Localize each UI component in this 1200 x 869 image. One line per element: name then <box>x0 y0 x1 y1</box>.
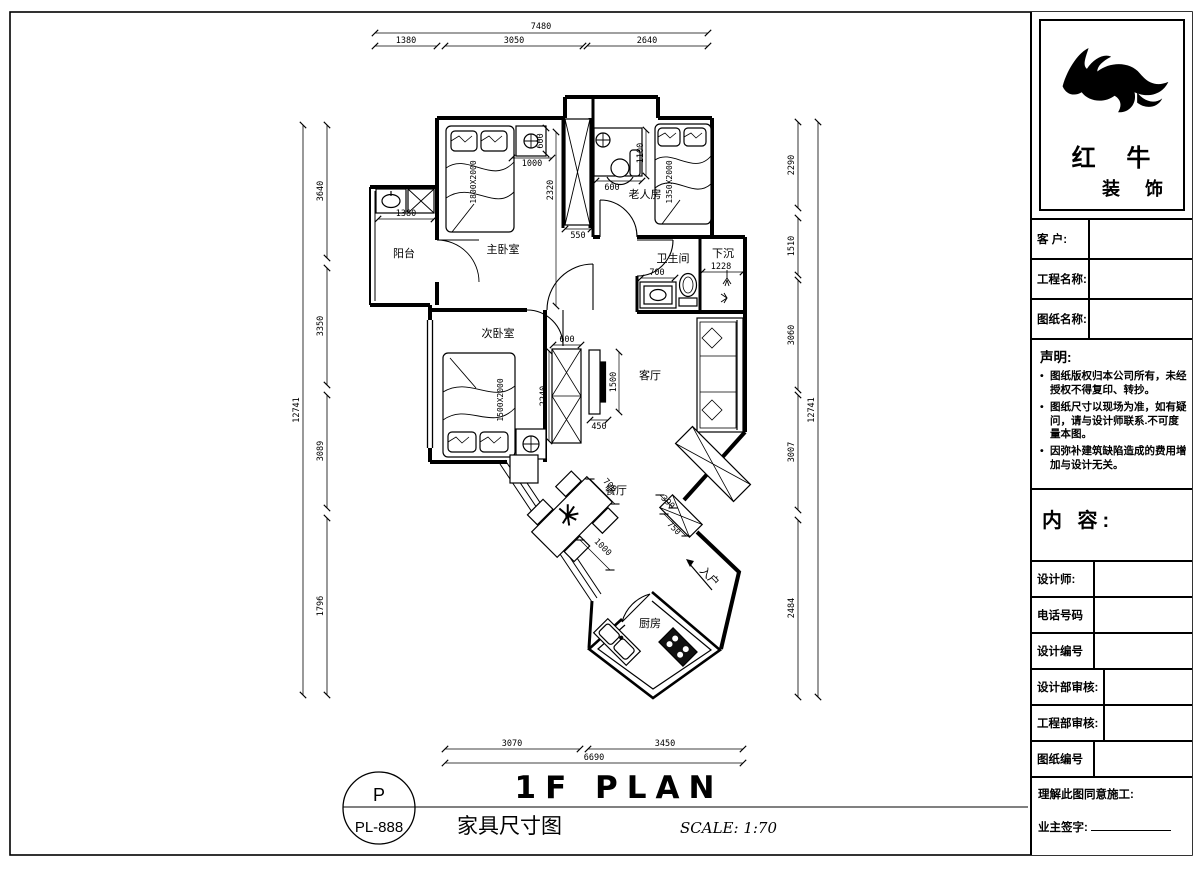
stamp-code: PL-888 <box>355 819 403 836</box>
dim-left-4: 1796 <box>316 596 326 616</box>
info-row-design-audit: 设计部审核: <box>1032 668 1192 704</box>
info-row-design-no: 设计编号 <box>1032 632 1192 668</box>
info-value <box>1093 598 1192 632</box>
elder-bed-size: 1350X2000 <box>665 160 674 204</box>
dim-right-overall: 12741 <box>807 397 817 423</box>
dim-bottom-overall: 6690 <box>584 753 604 763</box>
info-value <box>1093 742 1192 776</box>
room-label-kitchen: 厨房 <box>639 617 661 630</box>
dim-top-2: 3050 <box>504 36 524 46</box>
brand-name-2: 装 饰 <box>1041 175 1173 201</box>
field-value <box>1088 300 1192 338</box>
dim-left-overall: 12741 <box>292 397 302 423</box>
field-row-drawing-name: 图纸名称: <box>1032 298 1192 338</box>
field-value <box>1088 260 1192 298</box>
bath-vanity <box>640 282 676 308</box>
info-label: 工程部审核: <box>1032 715 1103 731</box>
hall-closet <box>552 349 581 443</box>
owner-signature-label: 业主签字: <box>1038 818 1186 835</box>
info-label: 设计师: <box>1032 571 1093 587</box>
dim-balcony: 1380 <box>396 209 416 219</box>
room-label-dining: 餐厅 <box>605 483 627 497</box>
info-value <box>1103 670 1192 704</box>
dim-right-3: 3060 <box>787 325 797 345</box>
stamp-letter: P <box>373 785 385 805</box>
signature-label-text: 业主签字: <box>1038 822 1088 834</box>
second-bed-size: 1500X2000 <box>496 378 505 422</box>
dimensions-left: 12741 3640 3350 3089 1796 <box>292 125 327 695</box>
dim-right-5: 2484 <box>787 598 797 618</box>
room-label-balcony: 阳台 <box>393 246 415 260</box>
dim-sunken: 1228 <box>711 262 731 272</box>
room-label-master: 主卧室 <box>487 242 520 256</box>
dim-master-len: 2320 <box>546 180 556 200</box>
info-label: 电话号码 <box>1032 607 1093 623</box>
brand-name: 红 牛 <box>1051 138 1183 173</box>
dim-bottom-2: 3450 <box>655 739 675 749</box>
info-label: 图纸编号 <box>1032 751 1093 767</box>
drawing-title-area: P PL-888 1F PLAN 家具尺寸图 SCALE: 1:70 <box>343 770 1028 844</box>
shower-head <box>721 270 731 303</box>
room-label-bath: 卫生间 <box>657 251 690 265</box>
signature-line <box>1091 818 1171 831</box>
entry-label: 入户 <box>697 563 722 588</box>
brand-box: 红 牛 装 饰 <box>1032 12 1192 218</box>
dim-desk-len: 1100 <box>636 143 646 163</box>
dim-left-1: 3640 <box>316 181 326 201</box>
field-row-project: 工程名称: <box>1032 258 1192 298</box>
bull-logo-icon <box>1047 31 1177 131</box>
info-value <box>1103 706 1192 740</box>
tv-cabinet <box>589 350 606 414</box>
content-heading: 内 容: <box>1032 488 1192 560</box>
room-label-living: 客厅 <box>639 368 661 382</box>
dim-closet-d: 600 <box>536 133 546 148</box>
info-value <box>1093 562 1192 596</box>
dim-desk-w: 600 <box>604 183 619 193</box>
statement-item: 因弥补建筑缺陷造成的费用增加与设计无关。 <box>1040 445 1187 473</box>
room-label-second: 次卧室 <box>482 326 515 340</box>
statement-heading: 声明: <box>1040 346 1187 366</box>
field-value <box>1088 220 1192 258</box>
info-row-drawing-no: 图纸编号 <box>1032 740 1192 776</box>
field-label: 图纸名称: <box>1032 311 1088 327</box>
info-value <box>1093 634 1192 668</box>
info-row-designer: 设计师: <box>1032 560 1192 596</box>
second-bed: 1500X2000 <box>443 353 515 457</box>
dim-bottom-1: 3070 <box>502 739 522 749</box>
dim-top-1: 1380 <box>396 36 416 46</box>
dim-right-2: 1510 <box>787 236 797 256</box>
dim-vanity: 700 <box>649 268 664 278</box>
dimensions-right: 2290 1510 3060 3007 2484 12741 <box>787 122 818 697</box>
room-label-sunken: 下沉 <box>712 247 734 260</box>
dim-left-2: 3350 <box>316 316 326 336</box>
dim-hall-closet-l: 2240 <box>539 386 549 406</box>
dim-top-overall: 7480 <box>531 22 551 32</box>
elder-bed: 1350X2000 <box>655 124 711 224</box>
field-label: 客 户: <box>1032 231 1088 247</box>
dim-right-4: 3007 <box>787 442 797 462</box>
sofa <box>697 318 743 432</box>
drawing-sheet: 7480 1380 3050 2640 12741 3640 3350 3089… <box>0 0 1200 869</box>
statement-box: 声明: 图纸版权归本公司所有，未经授权不得复印、转抄。 图纸尺寸以现场为准，如有… <box>1032 338 1192 488</box>
dimensions-top: 7480 1380 3050 2640 <box>375 22 708 46</box>
room-label-elder: 老人房 <box>629 188 662 201</box>
dim-closet-run: 1000 <box>522 159 542 169</box>
statement-item: 图纸版权归本公司所有，未经授权不得复印、转抄。 <box>1040 370 1187 398</box>
dim-tv-d: 450 <box>591 422 606 432</box>
info-label: 设计部审核: <box>1032 679 1103 695</box>
closet-top <box>565 119 590 225</box>
dimensions-bottom: 3070 3450 6690 <box>445 739 743 763</box>
info-row-phone: 电话号码 <box>1032 596 1192 632</box>
field-label: 工程名称: <box>1032 271 1088 287</box>
info-row-eng-audit: 工程部审核: <box>1032 704 1192 740</box>
agreement-text: 理解此图同意施工: <box>1038 786 1186 802</box>
cabinet-small <box>510 455 538 483</box>
toilet <box>679 274 697 307</box>
field-row-client: 客 户: <box>1032 218 1192 258</box>
drawing-subtitle: 家具尺寸图 <box>457 814 562 838</box>
master-bed: 1800X2000 <box>446 126 514 232</box>
dim-closet-w: 550 <box>570 231 585 241</box>
statement-item: 图纸尺寸以现场为准，如有疑问，请与设计师联系.不可度量本图。 <box>1040 401 1187 443</box>
scale-label: SCALE: 1:70 <box>680 819 777 837</box>
dim-left-3: 3089 <box>316 441 326 461</box>
floor-plan-canvas: 7480 1380 3050 2640 12741 3640 3350 3089… <box>0 0 1200 869</box>
title-block: 红 牛 装 饰 客 户: 工程名称: 图纸名称: 声明: 图纸版权归本公司所有，… <box>1030 12 1192 855</box>
dim-top-3: 2640 <box>637 36 657 46</box>
signature-box: 理解此图同意施工: 业主签字: <box>1032 776 1192 855</box>
dim-tv-l: 1500 <box>609 372 619 392</box>
drawing-title: 1F PLAN <box>515 770 724 806</box>
master-bed-size: 1800X2000 <box>469 160 478 204</box>
dim-right-1: 2290 <box>787 155 797 175</box>
info-label: 设计编号 <box>1032 643 1093 659</box>
dim-hall-closet-w: 600 <box>559 335 574 345</box>
